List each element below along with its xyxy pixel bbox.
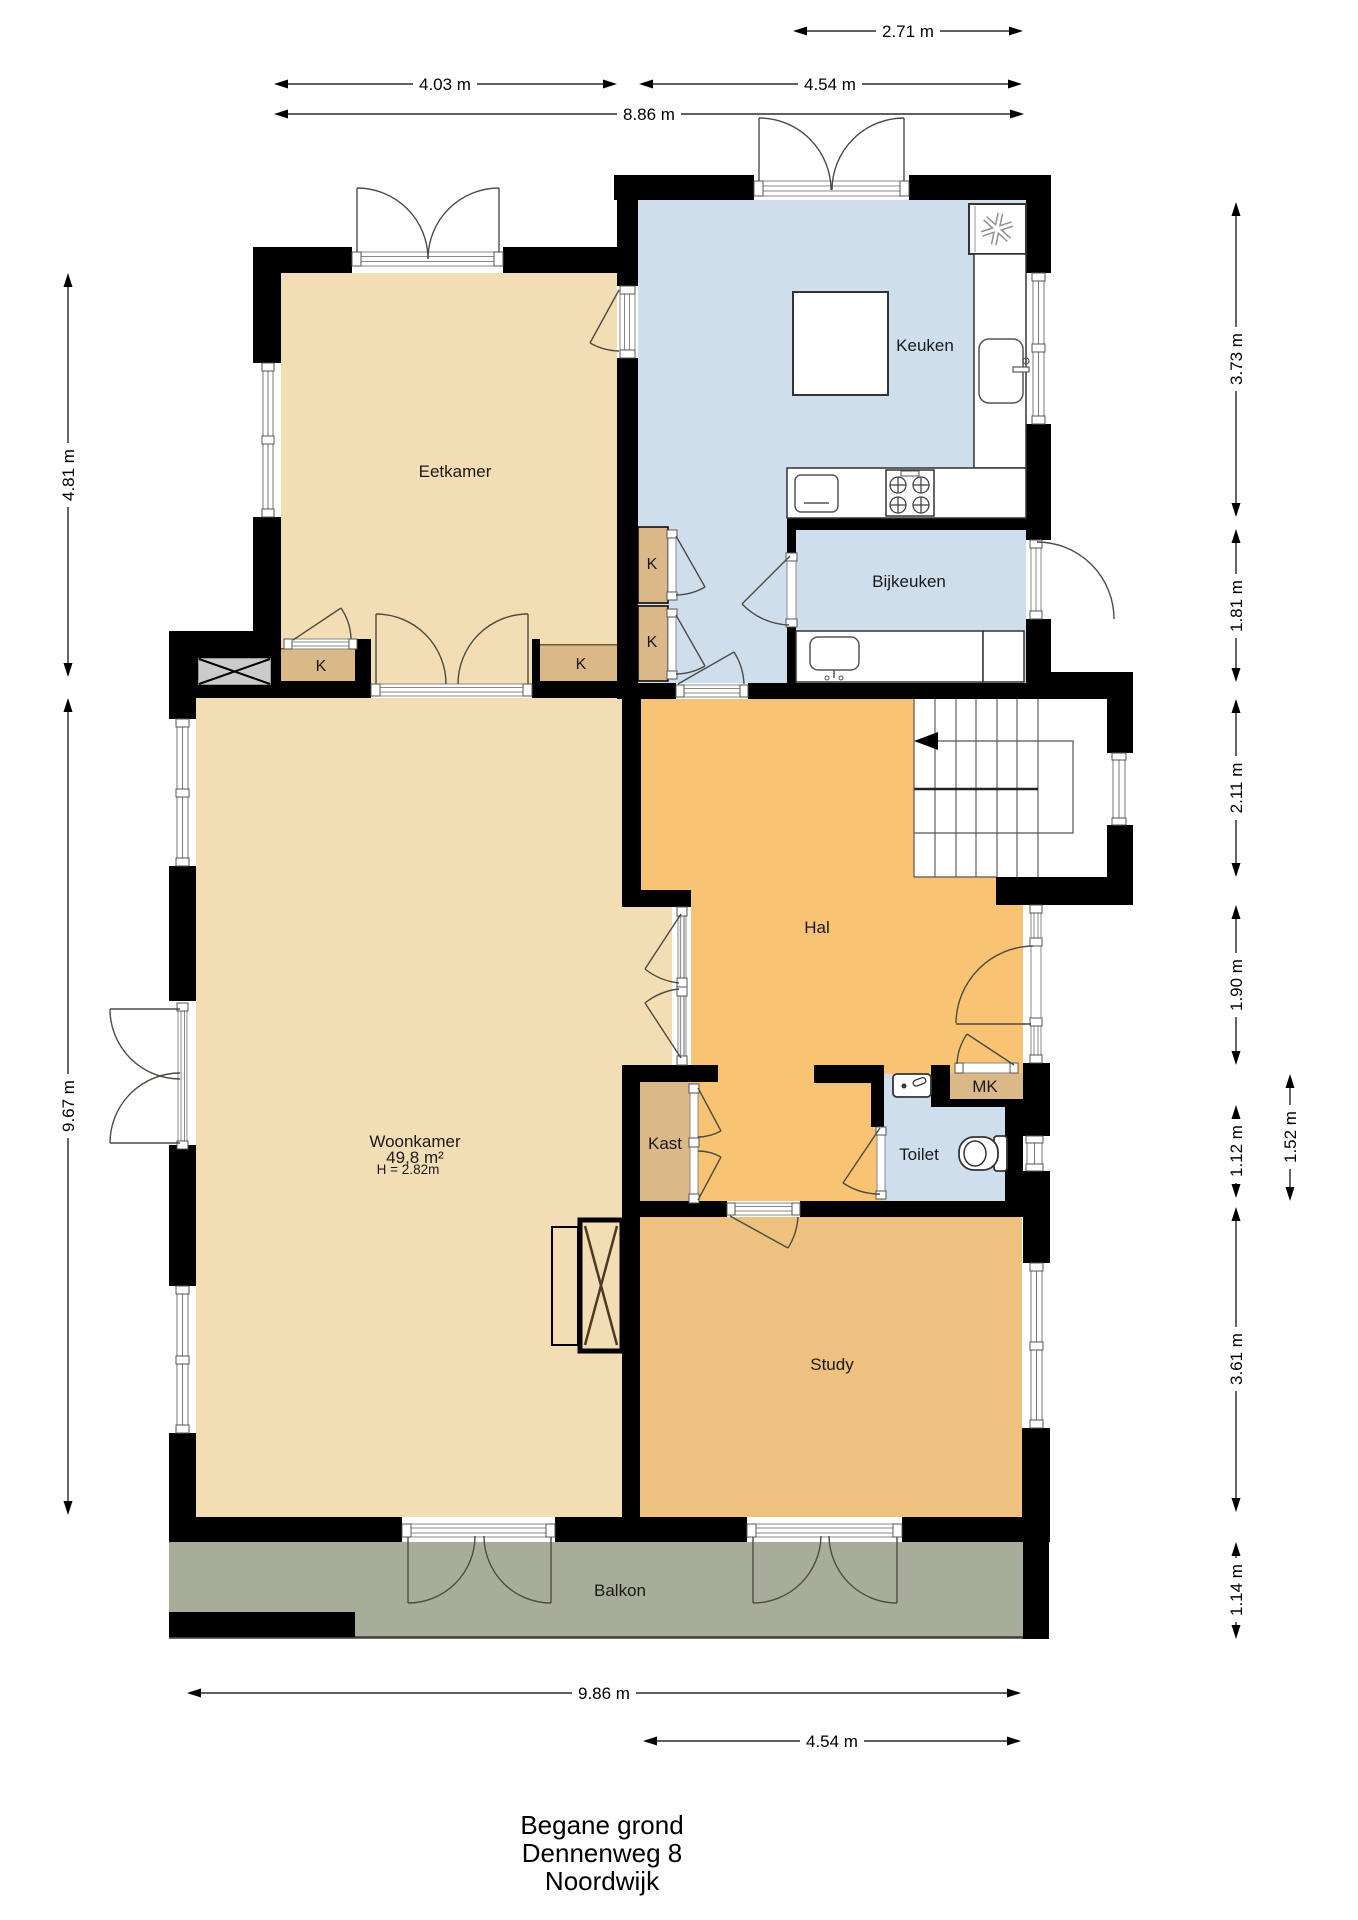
svg-text:Toilet: Toilet xyxy=(899,1145,939,1164)
svg-text:4.81 m: 4.81 m xyxy=(59,449,78,501)
svg-text:3.61 m: 3.61 m xyxy=(1227,1333,1246,1385)
svg-text:2.71 m: 2.71 m xyxy=(882,22,934,41)
svg-text:1.12 m: 1.12 m xyxy=(1227,1125,1246,1177)
svg-text:Keuken: Keuken xyxy=(896,336,954,355)
svg-text:K: K xyxy=(647,556,658,573)
svg-text:8.86 m: 8.86 m xyxy=(623,105,675,124)
svg-text:Begane grond: Begane grond xyxy=(520,1810,683,1840)
svg-text:Eetkamer: Eetkamer xyxy=(419,462,492,481)
svg-text:MK: MK xyxy=(972,1077,998,1096)
svg-text:Dennenweg 8: Dennenweg 8 xyxy=(522,1838,682,1868)
svg-text:Kast: Kast xyxy=(648,1134,682,1153)
svg-text:9.86 m: 9.86 m xyxy=(578,1684,630,1703)
svg-text:1.52 m: 1.52 m xyxy=(1281,1111,1300,1163)
svg-text:1.14 m: 1.14 m xyxy=(1227,1564,1246,1616)
svg-text:Noordwijk: Noordwijk xyxy=(545,1866,660,1896)
svg-text:1.81 m: 1.81 m xyxy=(1227,580,1246,632)
svg-text:4.54 m: 4.54 m xyxy=(806,1732,858,1751)
svg-text:K: K xyxy=(576,656,587,673)
svg-text:Study: Study xyxy=(810,1355,854,1374)
svg-text:1.90 m: 1.90 m xyxy=(1227,959,1246,1011)
svg-text:4.03 m: 4.03 m xyxy=(419,75,471,94)
svg-text:K: K xyxy=(316,658,327,675)
svg-text:3.73 m: 3.73 m xyxy=(1227,333,1246,385)
svg-text:H = 2.82m: H = 2.82m xyxy=(377,1162,440,1177)
svg-text:2.11 m: 2.11 m xyxy=(1227,763,1246,814)
svg-text:K: K xyxy=(647,634,658,651)
svg-text:Hal: Hal xyxy=(804,918,830,937)
svg-text:9.67 m: 9.67 m xyxy=(59,1080,78,1132)
svg-text:4.54 m: 4.54 m xyxy=(804,75,856,94)
svg-text:Balkon: Balkon xyxy=(594,1581,646,1600)
svg-text:Bijkeuken: Bijkeuken xyxy=(872,572,946,591)
